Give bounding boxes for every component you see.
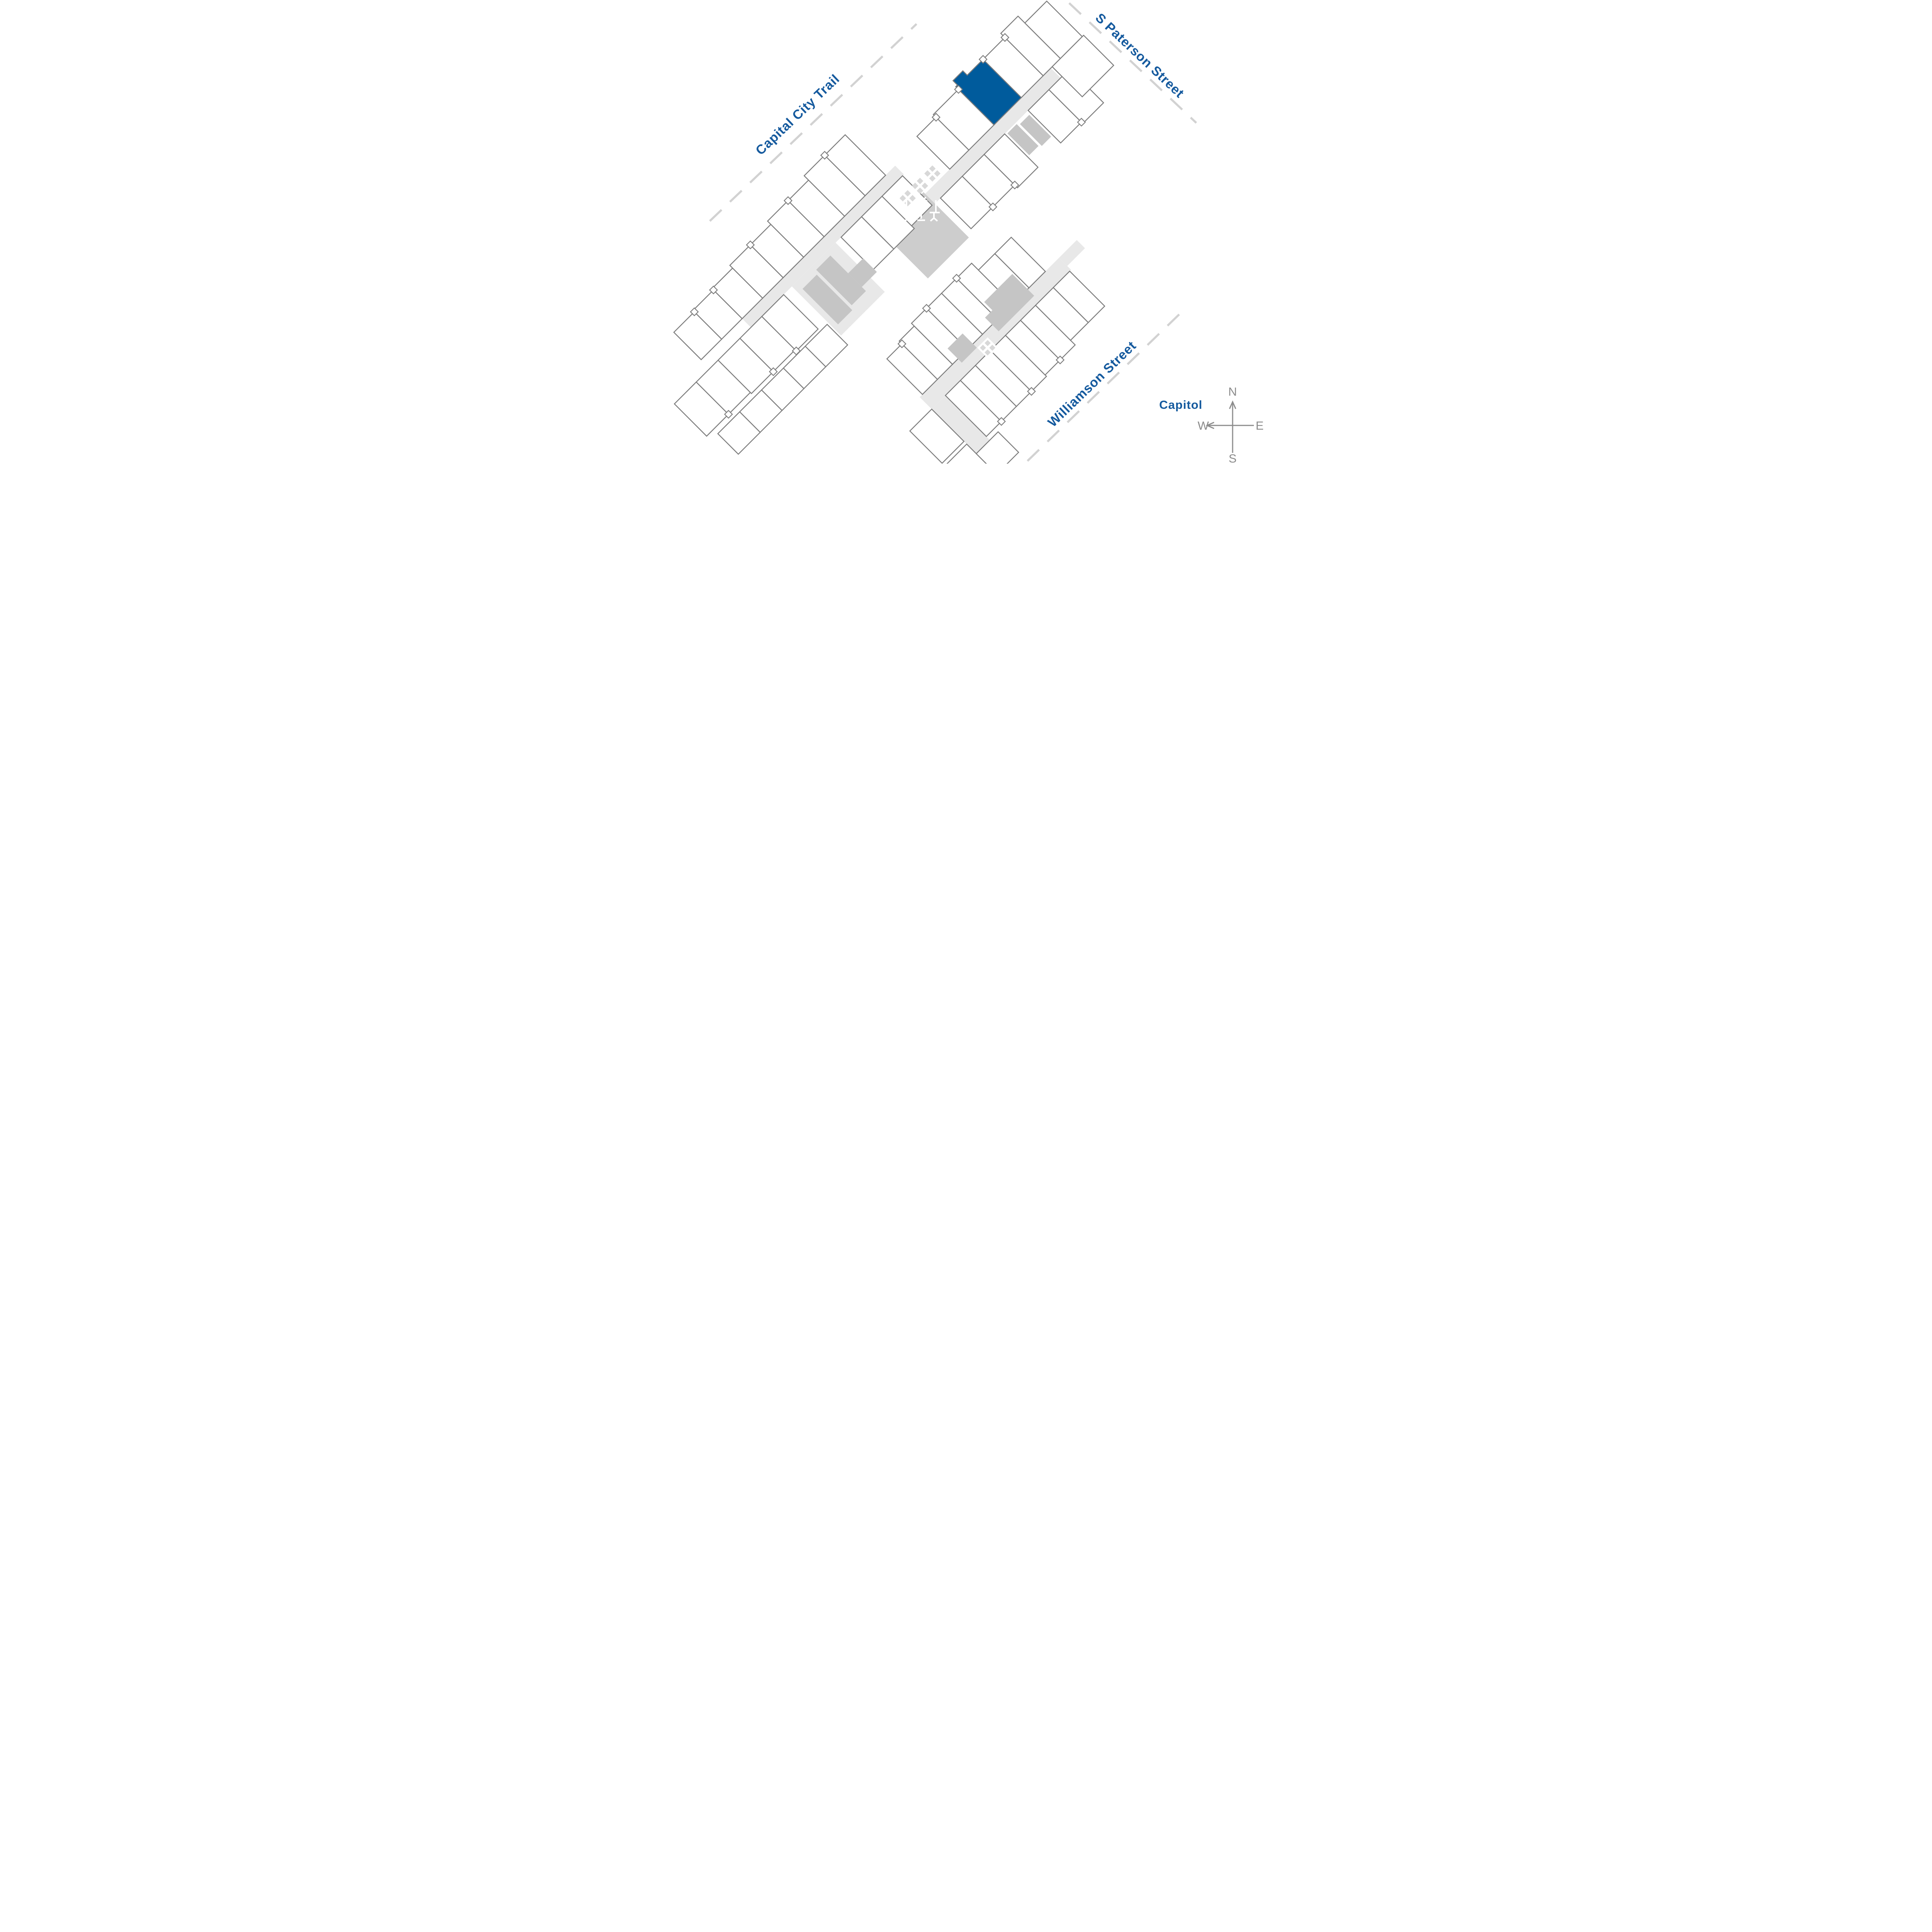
- capitol-label: Capitol: [1159, 398, 1202, 412]
- building-wing-west: [666, 123, 961, 461]
- site-plan-map: Capital City Trail S Paterson Street Wil…: [666, 0, 1266, 464]
- capital-city-trail-label: Capital City Trail: [753, 71, 842, 158]
- s-paterson-street-label: S Paterson Street: [1092, 10, 1187, 101]
- site-plan-svg: Capital City Trail S Paterson Street Wil…: [666, 0, 1266, 464]
- compass-south-label: S: [1229, 452, 1237, 464]
- compass-west-label: W: [1197, 419, 1209, 432]
- compass-rose-icon: N S W E: [1197, 385, 1264, 464]
- compass-east-label: E: [1256, 419, 1264, 432]
- compass-north-label: N: [1228, 385, 1237, 398]
